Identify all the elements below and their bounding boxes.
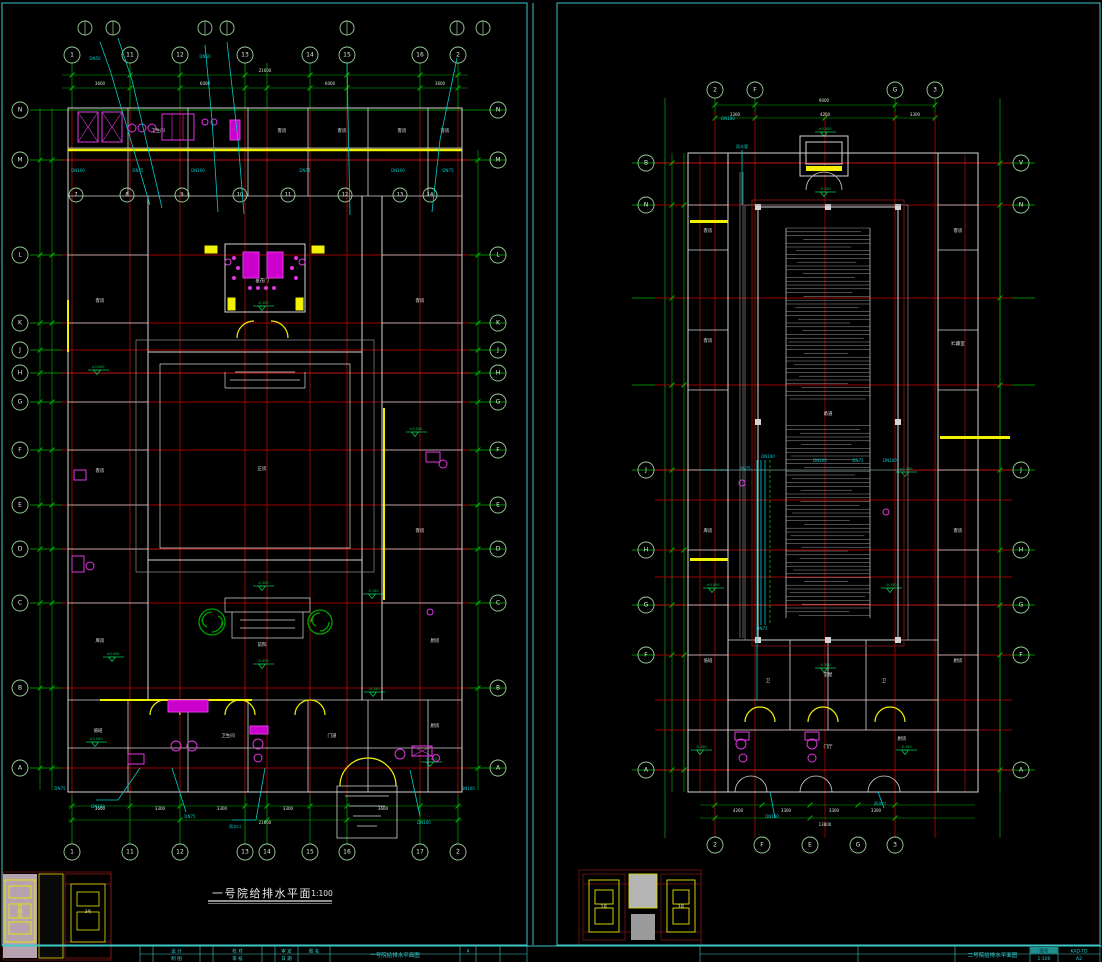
svg-text:J: J — [496, 347, 499, 354]
svg-text:11: 11 — [126, 849, 134, 856]
svg-text:客房: 客房 — [338, 127, 347, 134]
svg-text:厨房: 厨房 — [954, 657, 963, 664]
svg-text:DN100: DN100 — [813, 458, 827, 463]
left-plan-gallery — [136, 340, 374, 572]
svg-text:F: F — [760, 842, 764, 849]
svg-text:11: 11 — [285, 192, 291, 198]
right-plan-generated: 2FG32FEG3BNJHGFAVNJHGFA±0.000-0.150±0.00… — [557, 82, 1100, 962]
svg-text:-0.150: -0.150 — [885, 583, 896, 587]
svg-text:E: E — [18, 502, 22, 509]
svg-text:2: 2 — [456, 849, 460, 856]
svg-text:DN75: DN75 — [442, 168, 454, 173]
svg-text:G: G — [856, 842, 861, 849]
cad-drawing: 1111213141516278910111213141111213141516… — [0, 0, 1102, 962]
left-plan-generated: 1111213141516278910111213141111213141516… — [2, 21, 527, 962]
svg-text:3300: 3300 — [730, 112, 741, 117]
svg-text:12: 12 — [342, 192, 348, 198]
svg-text:4: 4 — [467, 949, 470, 955]
svg-text:一号院给排水平面图: 一号院给排水平面图 — [370, 951, 420, 959]
svg-text:H: H — [18, 370, 23, 377]
svg-text:N: N — [18, 107, 23, 114]
svg-text:-0.150: -0.150 — [257, 301, 268, 305]
svg-text:F: F — [18, 447, 22, 454]
svg-text:卫: 卫 — [882, 678, 887, 684]
svg-text:门厅: 门厅 — [824, 743, 833, 750]
svg-text:13800: 13800 — [819, 822, 832, 827]
svg-text:3: 3 — [933, 87, 937, 94]
svg-text:2: 2 — [713, 87, 717, 94]
svg-text:日 期: 日 期 — [281, 956, 292, 962]
svg-text:C: C — [18, 600, 22, 607]
svg-text:2: 2 — [456, 52, 460, 59]
svg-text:DN75: DN75 — [54, 786, 66, 791]
svg-text:14: 14 — [306, 52, 314, 59]
svg-text:B: B — [644, 160, 648, 167]
svg-text:15: 15 — [306, 849, 314, 856]
svg-text:E: E — [808, 842, 812, 849]
svg-text:DN100: DN100 — [71, 168, 85, 173]
svg-text:厨房: 厨房 — [431, 637, 440, 644]
svg-text:客房: 客房 — [416, 297, 425, 304]
svg-text:M: M — [17, 157, 22, 164]
svg-text:3号: 3号 — [85, 908, 92, 914]
svg-text:DN100: DN100 — [417, 820, 431, 825]
svg-text:DN100: DN100 — [191, 168, 205, 173]
svg-text:3600: 3600 — [95, 81, 106, 86]
svg-text:客房: 客房 — [954, 527, 963, 534]
svg-text:审 核: 审 核 — [232, 955, 243, 962]
svg-text:D: D — [18, 546, 23, 553]
svg-text:客房: 客房 — [704, 227, 713, 234]
svg-text:1:100: 1:100 — [1038, 956, 1051, 962]
svg-text:17: 17 — [416, 849, 424, 856]
svg-text:DN100: DN100 — [883, 458, 897, 463]
svg-text:审 定: 审 定 — [281, 948, 292, 955]
svg-text:客房: 客房 — [96, 467, 105, 474]
svg-text:二号院给排水平面图: 二号院给排水平面图 — [968, 951, 1018, 959]
svg-text:F: F — [1019, 652, 1023, 659]
svg-text:±0.000: ±0.000 — [107, 652, 120, 656]
svg-text:G: G — [644, 602, 649, 609]
svg-text:D: D — [496, 546, 501, 553]
svg-text:-0.150: -0.150 — [367, 589, 378, 593]
svg-text:值班: 值班 — [704, 657, 713, 664]
svg-text:厨房: 厨房 — [431, 722, 440, 729]
svg-text:3300: 3300 — [283, 806, 294, 811]
svg-text:KAD-TD: KAD-TD — [1071, 949, 1088, 955]
svg-text:值班: 值班 — [94, 727, 103, 734]
svg-text:库房: 库房 — [704, 527, 713, 534]
svg-text:C: C — [496, 600, 500, 607]
svg-text:J: J — [644, 467, 647, 474]
svg-text:客房: 客房 — [704, 337, 713, 344]
svg-text:-0.150: -0.150 — [900, 745, 911, 749]
svg-text:±0.000: ±0.000 — [819, 127, 832, 131]
svg-text:DN75: DN75 — [852, 458, 864, 463]
svg-text:13: 13 — [397, 192, 403, 198]
svg-text:2: 2 — [713, 842, 717, 849]
svg-text:库房: 库房 — [96, 637, 105, 644]
svg-text:前院: 前院 — [258, 641, 267, 648]
svg-text:-0.450: -0.450 — [257, 659, 268, 663]
svg-text:7: 7 — [74, 192, 77, 198]
svg-text:客房: 客房 — [278, 127, 287, 134]
svg-text:21600: 21600 — [259, 68, 272, 73]
svg-text:3300: 3300 — [155, 806, 166, 811]
svg-text:±0.000: ±0.000 — [900, 467, 913, 471]
svg-text:-0.300: -0.300 — [819, 663, 830, 667]
svg-text:贮藏室: 贮藏室 — [951, 340, 965, 347]
svg-text:-0.150: -0.150 — [425, 757, 436, 761]
svg-text:9000: 9000 — [819, 98, 830, 103]
svg-text:N: N — [496, 107, 501, 114]
svg-text:F: F — [753, 87, 757, 94]
svg-text:3600: 3600 — [378, 806, 389, 811]
svg-text:K: K — [18, 320, 23, 327]
left-plan-title: 一号院给排水平面 1:100 — [208, 886, 333, 904]
svg-text:DN100: DN100 — [461, 786, 475, 791]
right-plan-pipes — [700, 150, 905, 818]
svg-text:N: N — [1019, 202, 1024, 209]
svg-text:卫生间: 卫生间 — [151, 127, 165, 134]
svg-text:13: 13 — [241, 52, 249, 59]
svg-text:卫: 卫 — [766, 678, 771, 684]
svg-text:DN100: DN100 — [391, 168, 405, 173]
svg-text:A2: A2 — [1076, 956, 1082, 962]
svg-text:DN100: DN100 — [765, 814, 779, 819]
svg-text:3600: 3600 — [435, 81, 446, 86]
svg-text:12: 12 — [176, 52, 184, 59]
svg-text:DN50: DN50 — [89, 56, 101, 61]
svg-text:卫生间: 卫生间 — [221, 732, 235, 739]
left-plan-fixtures — [72, 112, 447, 764]
svg-text:G: G — [496, 399, 501, 406]
svg-text:设 计: 设 计 — [171, 948, 182, 955]
svg-text:J: J — [18, 347, 21, 354]
left-plan-pipes — [96, 38, 457, 820]
svg-text:3300: 3300 — [829, 808, 840, 813]
svg-text:1: 1 — [70, 52, 74, 59]
svg-text:L: L — [18, 252, 22, 259]
svg-text:3300: 3300 — [910, 112, 921, 117]
svg-text:F: F — [496, 447, 500, 454]
left-plan-trees — [199, 609, 332, 635]
svg-text:校 对: 校 对 — [232, 948, 243, 955]
svg-text:12: 12 — [176, 849, 184, 856]
svg-text:4200: 4200 — [733, 808, 744, 813]
svg-text:门道: 门道 — [328, 732, 337, 739]
svg-text:±0.000: ±0.000 — [410, 427, 423, 431]
svg-text:F: F — [644, 652, 648, 659]
svg-text:G: G — [18, 399, 23, 406]
cad-viewport[interactable]: 1111213141516278910111213141111213141516… — [0, 0, 1102, 962]
svg-text:14: 14 — [263, 849, 271, 856]
svg-text:DN75: DN75 — [184, 814, 196, 819]
svg-text:客房: 客房 — [96, 297, 105, 304]
svg-text:15: 15 — [343, 52, 351, 59]
svg-text:甬道: 甬道 — [824, 410, 833, 417]
svg-text:G: G — [1019, 602, 1024, 609]
svg-text:3300: 3300 — [781, 808, 792, 813]
svg-text:制 图: 制 图 — [171, 955, 182, 962]
svg-text:DN75: DN75 — [299, 168, 311, 173]
svg-text:-0.150: -0.150 — [368, 687, 379, 691]
svg-text:3300: 3300 — [217, 806, 228, 811]
svg-text:正房: 正房 — [258, 465, 267, 472]
svg-text:H: H — [644, 547, 649, 554]
svg-text:客房: 客房 — [416, 527, 425, 534]
svg-text:图 名: 图 名 — [309, 948, 319, 955]
svg-text:A: A — [18, 765, 23, 772]
svg-text:雨水口: 雨水口 — [229, 823, 241, 829]
svg-text:3600: 3600 — [95, 806, 106, 811]
svg-text:3: 3 — [893, 842, 897, 849]
svg-text:雨水口: 雨水口 — [874, 800, 886, 806]
svg-text:DN75: DN75 — [132, 168, 144, 173]
svg-text:6000: 6000 — [325, 81, 336, 86]
svg-text:H: H — [496, 370, 501, 377]
svg-text:±0.000: ±0.000 — [92, 365, 105, 369]
svg-text:9: 9 — [180, 192, 183, 198]
svg-text:-0.150: -0.150 — [695, 745, 706, 749]
svg-text:-0.300: -0.300 — [257, 581, 268, 585]
svg-text:客房: 客房 — [398, 127, 407, 134]
svg-text:±0.000: ±0.000 — [90, 737, 103, 741]
svg-text:M: M — [495, 157, 500, 164]
svg-text:21600: 21600 — [259, 820, 272, 825]
svg-text:J: J — [1019, 467, 1022, 474]
svg-text:N: N — [644, 202, 649, 209]
svg-text:B: B — [496, 685, 500, 692]
right-plan-yellow — [690, 166, 1010, 722]
svg-text:1: 1 — [70, 849, 74, 856]
svg-text:16: 16 — [416, 52, 424, 59]
right-plan-maroon — [752, 200, 904, 646]
svg-text:4200: 4200 — [820, 112, 831, 117]
svg-text:13: 13 — [241, 849, 249, 856]
svg-text:厨房: 厨房 — [898, 735, 907, 742]
svg-text:DN50: DN50 — [199, 54, 211, 59]
svg-text:±0.000: ±0.000 — [707, 583, 720, 587]
right-inset-keyplan — [579, 870, 701, 946]
svg-text:DN100: DN100 — [761, 454, 775, 459]
plan-title-text: 一号院给排水平面 — [212, 886, 312, 900]
svg-text:客房: 客房 — [954, 227, 963, 234]
svg-text:3300: 3300 — [871, 808, 882, 813]
right-plan-walls — [688, 136, 978, 792]
svg-text:B: B — [18, 685, 22, 692]
sheet-frames — [2, 3, 1102, 946]
svg-text:雨水管: 雨水管 — [736, 143, 748, 149]
svg-text:H: H — [1019, 547, 1024, 554]
svg-text:-0.150: -0.150 — [819, 187, 830, 191]
plan-scale-text: 1:100 — [311, 889, 333, 898]
svg-text:11: 11 — [126, 52, 134, 59]
svg-text:G: G — [893, 87, 898, 94]
svg-text:图号: 图号 — [1040, 949, 1049, 955]
svg-text:16: 16 — [343, 849, 351, 856]
left-inset-keyplan — [3, 872, 111, 960]
svg-text:E: E — [496, 502, 500, 509]
